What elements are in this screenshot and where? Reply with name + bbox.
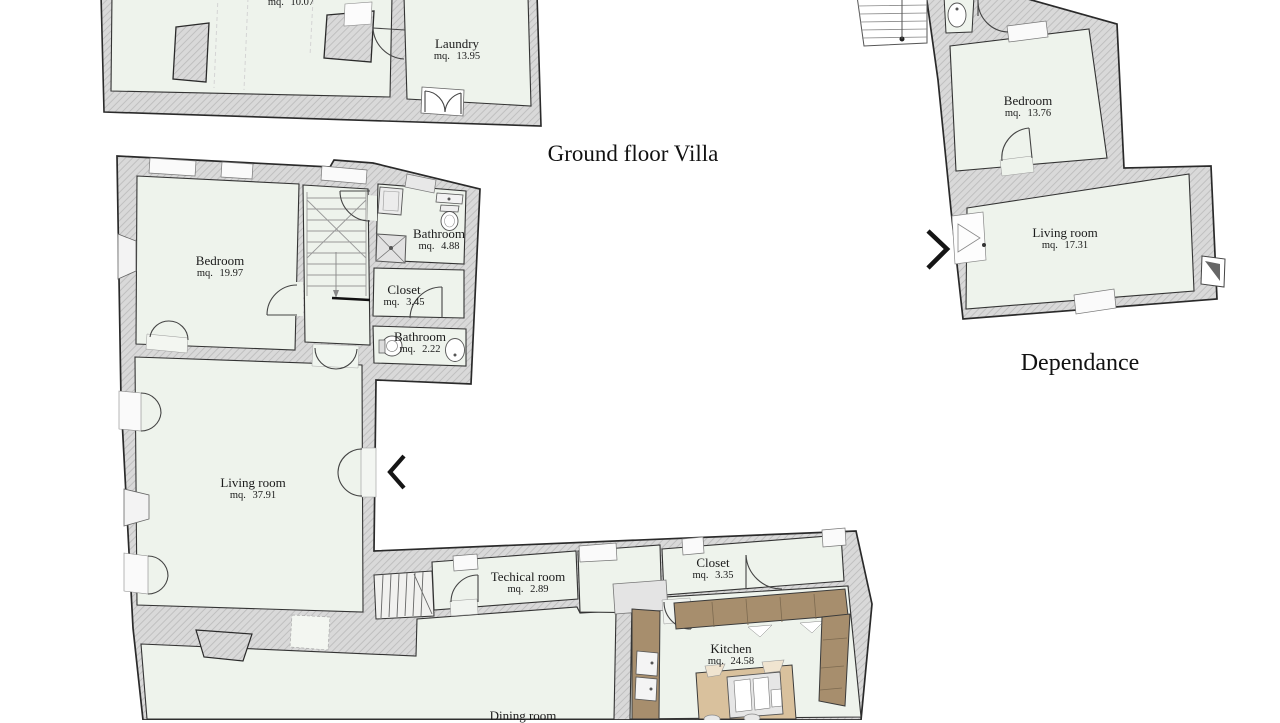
room-area: mq. 24.58: [708, 656, 754, 668]
annex-wall-stub: [173, 23, 209, 82]
room-name: Closet: [692, 556, 733, 570]
room-name: Kitchen: [708, 642, 754, 656]
room-label-upper: mq. 10.07: [268, 0, 314, 9]
room-name: Dining room: [490, 709, 557, 723]
room-label-bathroom1: Bathroom mq. 4.88: [413, 227, 465, 253]
room-name: Closet: [383, 283, 424, 297]
room-name: Living room: [1032, 226, 1097, 240]
chevron-left-icon[interactable]: [390, 456, 404, 488]
room-area: mq. 2.89: [491, 584, 566, 596]
room-label-dep-living: Living room mq. 17.31: [1032, 226, 1097, 252]
room-area: mq. 13.95: [434, 51, 480, 63]
villa-building: [117, 156, 872, 720]
room-name: Living room: [220, 476, 285, 490]
room-area: mq. 17.31: [1032, 240, 1097, 252]
dependance-title: Dependance: [1021, 350, 1140, 377]
room-label-technical: Techical room mq. 2.89: [491, 570, 566, 596]
room-name: Bathroom: [394, 330, 446, 344]
room-name: Techical room: [491, 570, 566, 584]
chevron-right-icon[interactable]: [928, 231, 947, 268]
room-label-dep-bedroom: Bedroom mq. 13.76: [1004, 94, 1052, 120]
room-label-closet2: Closet mq. 3.35: [692, 556, 733, 582]
annex-building: [101, 0, 541, 126]
fireplace: [196, 630, 252, 661]
room-area: mq. 10.07: [268, 0, 314, 9]
room-label-kitchen: Kitchen mq. 24.58: [708, 642, 754, 668]
room-label-living: Living room mq. 37.91: [220, 476, 285, 502]
sink: [948, 3, 966, 27]
room-label-bathroom2: Bathroom mq. 2.22: [394, 330, 446, 356]
room-name: Bedroom: [1004, 94, 1052, 108]
room-label-bedroom: Bedroom mq. 19.97: [196, 254, 244, 280]
room-area: mq. 4.88: [413, 241, 465, 253]
dependance-stairs: [857, 0, 927, 46]
room-label-dining: Dining room: [490, 709, 557, 723]
room-area: mq. 3.35: [692, 570, 733, 582]
room-area: mq. 19.97: [196, 268, 244, 280]
landing-pad: [613, 580, 668, 614]
room-area: mq. 2.22: [394, 344, 446, 356]
villa-title: Ground floor Villa: [548, 141, 719, 167]
room-name: Laundry: [434, 37, 480, 51]
room-label-laundry: Laundry mq. 13.95: [434, 37, 480, 63]
room-area: mq. 37.91: [220, 490, 285, 502]
room-area: mq. 13.76: [1004, 108, 1052, 120]
dependance-building: [857, 0, 1225, 319]
room-label-closet1: Closet mq. 3.45: [383, 283, 424, 309]
room-area: mq. 3.45: [383, 297, 424, 309]
room-name: Bathroom: [413, 227, 465, 241]
room-name: Bedroom: [196, 254, 244, 268]
